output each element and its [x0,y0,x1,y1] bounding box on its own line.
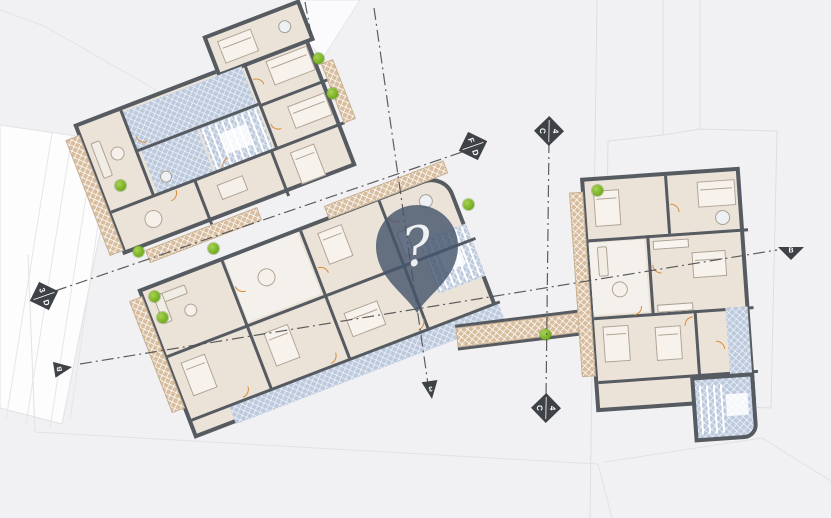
building-wing-c [580,167,756,413]
tree-icon [115,180,126,191]
bed-symbol [602,325,630,363]
bed-symbol [691,250,727,278]
door-symbol [168,190,180,202]
door-symbol [670,203,680,213]
corridor [725,307,752,374]
tree-icon [133,246,144,257]
tree-icon [540,329,551,340]
parcel-boundary [0,10,170,98]
bed-symbol [263,324,300,367]
tree-icon [149,291,160,302]
parcel-boundary [663,0,700,135]
door-symbol [253,76,265,88]
table-symbol [182,302,199,319]
door-symbol [317,264,329,276]
sofa-symbol [597,246,609,277]
bed-symbol [290,143,326,184]
table-symbol [216,175,248,200]
bed-symbol [317,224,353,265]
door-symbol [652,264,662,274]
stair-landing [725,393,748,416]
tree-icon [592,185,603,196]
tree-icon [327,88,338,99]
wall [194,180,214,226]
wall [270,151,290,197]
door-symbol [684,316,694,326]
stairwell [690,372,758,442]
bath-symbol [276,18,293,35]
site-plan-canvas: 3 D F D C 4 C 4 B [0,0,831,518]
bed-symbol [343,300,386,337]
table-symbol [109,144,127,162]
stairs-symbol [699,384,728,434]
bed-symbol [287,92,333,129]
bed-symbol [697,179,737,208]
bed-symbol [180,354,217,397]
tree-icon [463,199,474,210]
door-symbol [716,340,726,350]
tree-icon [313,53,324,64]
bed-symbol [217,28,259,63]
bath-symbol [158,169,174,185]
bath-symbol [715,210,731,226]
wall [694,310,702,376]
kitchen-counter-symbol [653,238,690,249]
bed-symbol [655,325,683,361]
tree-icon [157,312,168,323]
tree-icon [208,243,219,254]
table-symbol [142,207,165,230]
